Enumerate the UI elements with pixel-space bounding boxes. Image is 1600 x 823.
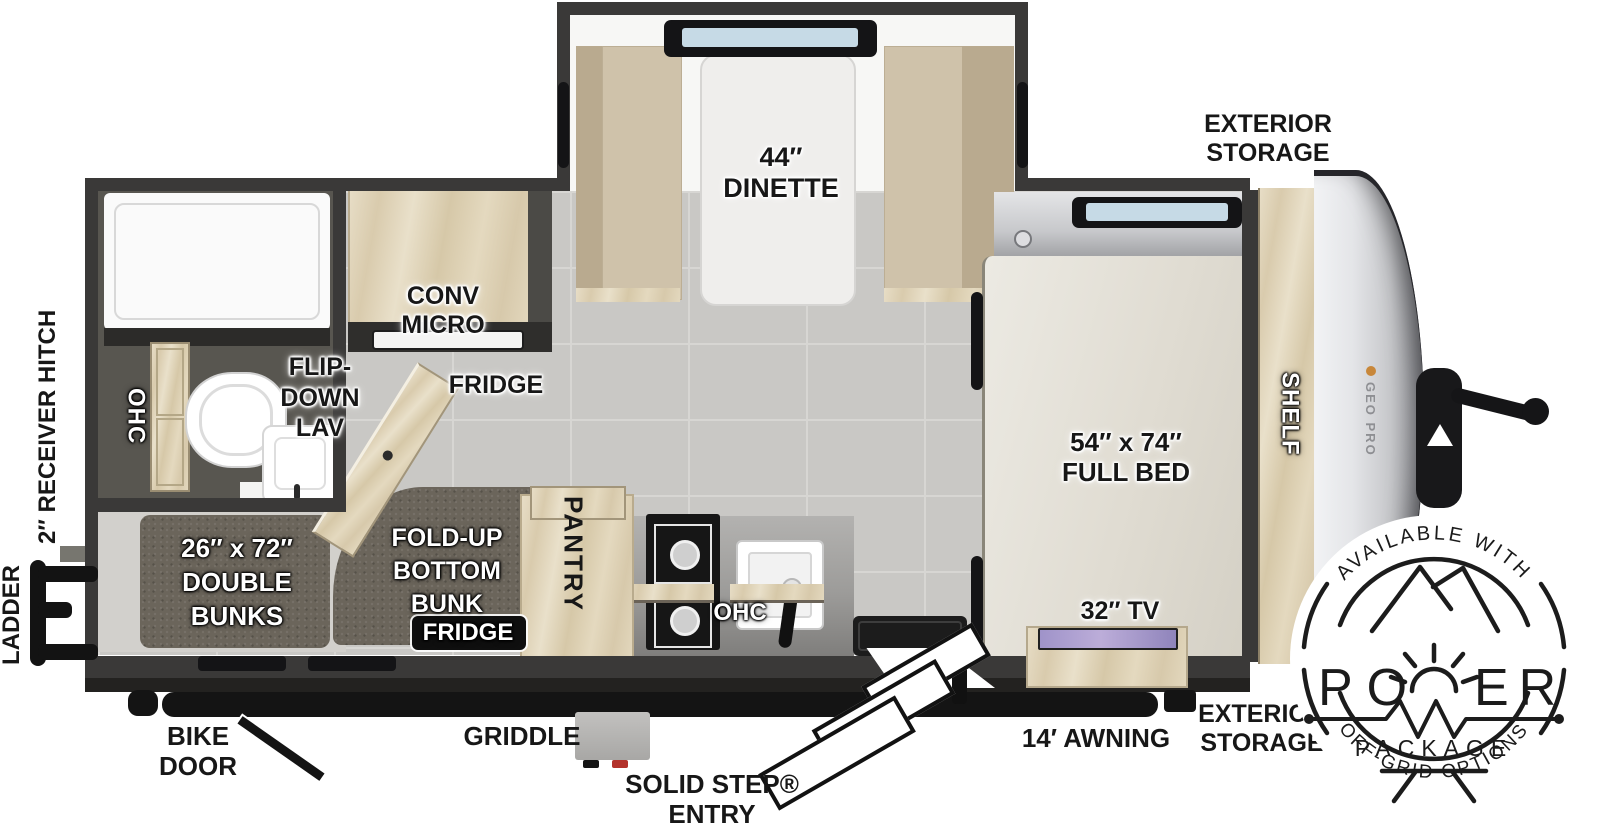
ohc-kitchen-label: OHC	[713, 599, 766, 626]
resistor-dot-left	[1304, 714, 1314, 724]
dinette-wall-top	[557, 2, 1028, 15]
storage-latch	[1014, 230, 1032, 248]
bike-door-label: BIKE DOOR	[159, 722, 237, 781]
front-window-glass	[1086, 203, 1228, 221]
power-package-badge: AVAILABLE WITH PO ER PACKAGE OFF-GRID OP…	[1288, 513, 1580, 805]
ladder-arm-bottom	[38, 644, 98, 660]
bike-door-line1: BIKE	[159, 722, 237, 752]
fold-up-bunk-line3: BUNK	[391, 588, 502, 621]
bed-window-upper	[971, 292, 983, 390]
lav-basin	[274, 437, 326, 490]
fold-up-bunk-line1: FOLD-UP	[391, 522, 502, 555]
bunk-window-right	[308, 656, 396, 671]
ladder-label: LADDER	[0, 548, 26, 682]
griddle-foot-left	[583, 760, 599, 768]
rear-wall	[85, 178, 98, 665]
tv-screen	[1038, 628, 1178, 650]
fridge-lower-label: FRIDGE	[423, 619, 514, 646]
dinette-left-bench-base	[576, 288, 680, 302]
ladder-arm-top	[38, 566, 98, 582]
double-bunks-line2: DOUBLE	[181, 566, 293, 600]
awning-roller	[162, 692, 1158, 717]
door-handle	[381, 449, 395, 463]
dinette-left-bench	[602, 46, 682, 300]
ohc-rail-left	[626, 584, 714, 603]
solid-step-line1: SOLID STEP®	[625, 770, 799, 800]
ladder-arm-middle	[38, 602, 72, 618]
solid-step-line2: ENTRY	[625, 800, 799, 823]
coupler-triangle-icon	[1427, 424, 1453, 446]
burner-top	[670, 540, 700, 570]
double-bunks-label: 26″ x 72″ DOUBLE BUNKS	[181, 532, 293, 633]
dinette-side-window-left	[558, 82, 569, 168]
solid-step-label: SOLID STEP® ENTRY	[625, 770, 799, 823]
bed-shelf-divider	[1242, 190, 1258, 662]
dinette-label: 44″ DINETTE	[723, 142, 839, 204]
full-bed-label: 54″ x 74″ FULL BED	[1062, 428, 1190, 487]
conv-micro-line2: MICRO	[401, 311, 484, 340]
griddle-box	[575, 712, 650, 760]
shower	[104, 193, 330, 330]
awning-end-cap	[128, 690, 158, 716]
double-bunks-size: 26″ x 72″	[181, 532, 293, 566]
receiver-hitch-label: 2″ RECEIVER HITCH	[34, 292, 66, 562]
top-wall-right	[1028, 178, 1250, 191]
burner-bottom	[670, 606, 700, 636]
full-bed-size: 54″ x 74″	[1062, 428, 1190, 458]
dinette-side-window-right	[1017, 82, 1028, 168]
double-bunks-line3: BUNKS	[181, 600, 293, 634]
bathroom-wall-bottom	[85, 498, 346, 512]
brand-logo-dot	[1366, 366, 1376, 376]
flip-down-lav-line3: LAV	[280, 413, 359, 444]
bunk-window-left	[198, 656, 286, 671]
brand-logo: GEO PRO	[1362, 382, 1377, 457]
dinette-word: DINETTE	[723, 173, 839, 204]
cooktop	[646, 514, 720, 650]
exterior-storage-top-line1: EXTERIOR	[1204, 110, 1332, 139]
shelf-label: SHELF	[1276, 372, 1303, 456]
dinette-right-bench	[884, 46, 964, 300]
dinette-window-glass	[682, 28, 858, 47]
top-wall-left	[85, 178, 570, 191]
fold-up-bunk-label: FOLD-UP BOTTOM BUNK	[391, 522, 502, 621]
bath-cabinet-door-top	[156, 348, 184, 416]
fold-up-bunk-line2: BOTTOM	[391, 555, 502, 588]
fridge-upper-label: FRIDGE	[449, 371, 543, 400]
exterior-storage-top-line2: STORAGE	[1204, 139, 1332, 168]
dinette-left-backrest	[576, 46, 602, 298]
griddle-label: GRIDDLE	[464, 722, 581, 752]
conv-micro-line1: CONV	[401, 282, 484, 311]
flip-down-lav-line2: DOWN	[280, 383, 359, 414]
griddle-foot-right	[612, 760, 628, 768]
ohc-bath-label: OHC	[122, 388, 149, 444]
flip-down-lav-label: FLIP- DOWN LAV	[280, 352, 359, 444]
bike-door-line2: DOOR	[159, 752, 237, 782]
jack-handle-knob	[1522, 398, 1549, 425]
badge-power-right: ER	[1474, 659, 1566, 717]
flip-down-lav-line1: FLIP-	[280, 352, 359, 383]
awning-bracket	[1164, 690, 1196, 712]
badge-power-left: PO	[1318, 659, 1421, 717]
bike-door-line	[237, 716, 324, 781]
bath-cabinet	[150, 342, 190, 492]
pantry-label: PANTRY	[558, 496, 588, 612]
bath-cabinet-door-bottom	[156, 418, 184, 486]
power-package-badge-art: AVAILABLE WITH PO ER PACKAGE OFF-GRID OP…	[1288, 513, 1580, 805]
awning-label: 14′ AWNING	[1022, 724, 1170, 754]
tv-box	[1026, 626, 1188, 688]
exterior-storage-top-label: EXTERIOR STORAGE	[1204, 110, 1332, 167]
full-bed-word: FULL BED	[1062, 458, 1190, 488]
shower-pan	[114, 203, 320, 320]
tv-label: 32″ TV	[1081, 597, 1160, 626]
floorplan-canvas: GEO PRO EXTERIOR STORAGE 44″ DINETTE CON…	[0, 0, 1600, 823]
shower-ledge	[104, 328, 330, 346]
conv-micro-label: CONV MICRO	[401, 282, 484, 339]
dinette-size: 44″	[723, 142, 839, 173]
